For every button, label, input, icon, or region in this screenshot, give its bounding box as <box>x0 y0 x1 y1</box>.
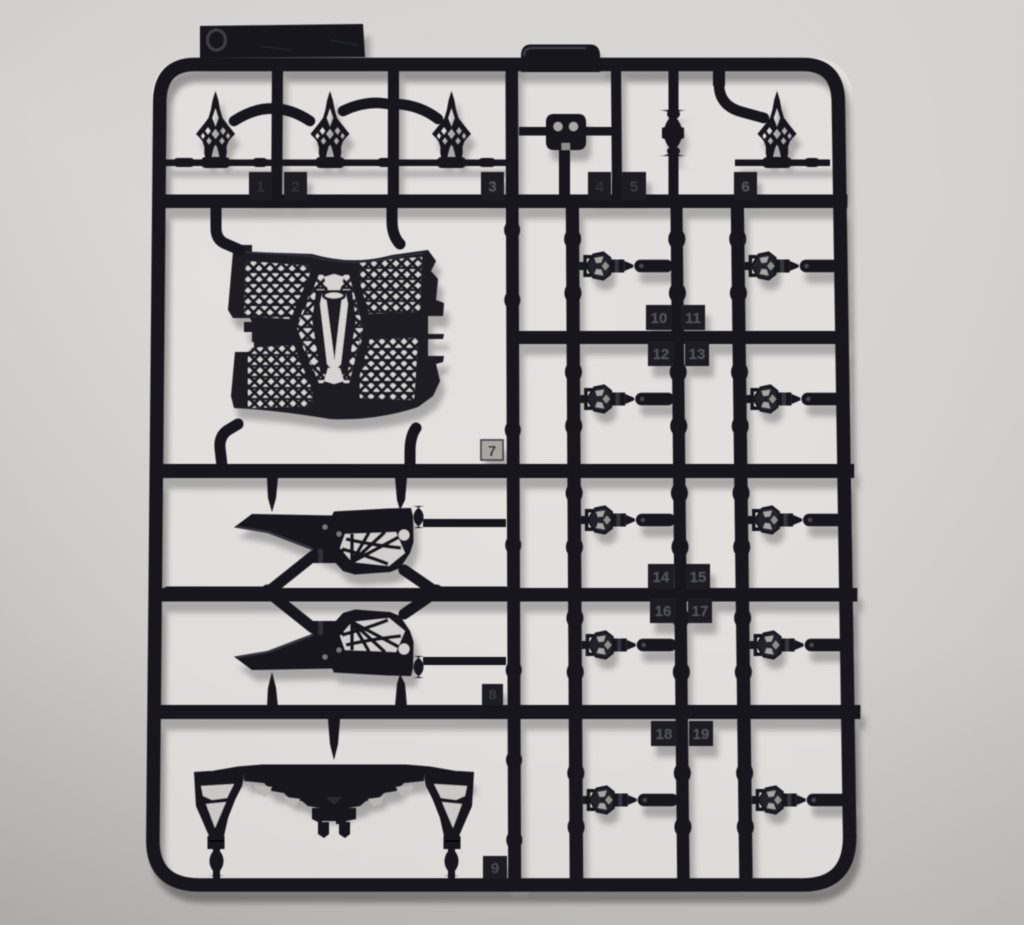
svg-text:15: 15 <box>690 569 707 586</box>
svg-text:18: 18 <box>656 726 673 743</box>
svg-text:12: 12 <box>653 346 670 363</box>
svg-text:11: 11 <box>685 310 701 327</box>
svg-text:9: 9 <box>491 860 499 877</box>
svg-text:6: 6 <box>741 178 749 195</box>
svg-text:17: 17 <box>692 603 709 620</box>
svg-text:10: 10 <box>651 310 668 327</box>
svg-text:14: 14 <box>653 569 670 586</box>
svg-text:4: 4 <box>595 178 604 195</box>
svg-text:7: 7 <box>488 443 496 460</box>
svg-text:3: 3 <box>488 178 496 195</box>
svg-text:13: 13 <box>689 346 706 363</box>
svg-text:16: 16 <box>655 603 672 620</box>
svg-text:1: 1 <box>256 178 264 195</box>
svg-text:2: 2 <box>291 178 299 195</box>
svg-text:8: 8 <box>489 687 497 703</box>
svg-text:5: 5 <box>630 178 638 195</box>
svg-text:19: 19 <box>693 726 710 743</box>
